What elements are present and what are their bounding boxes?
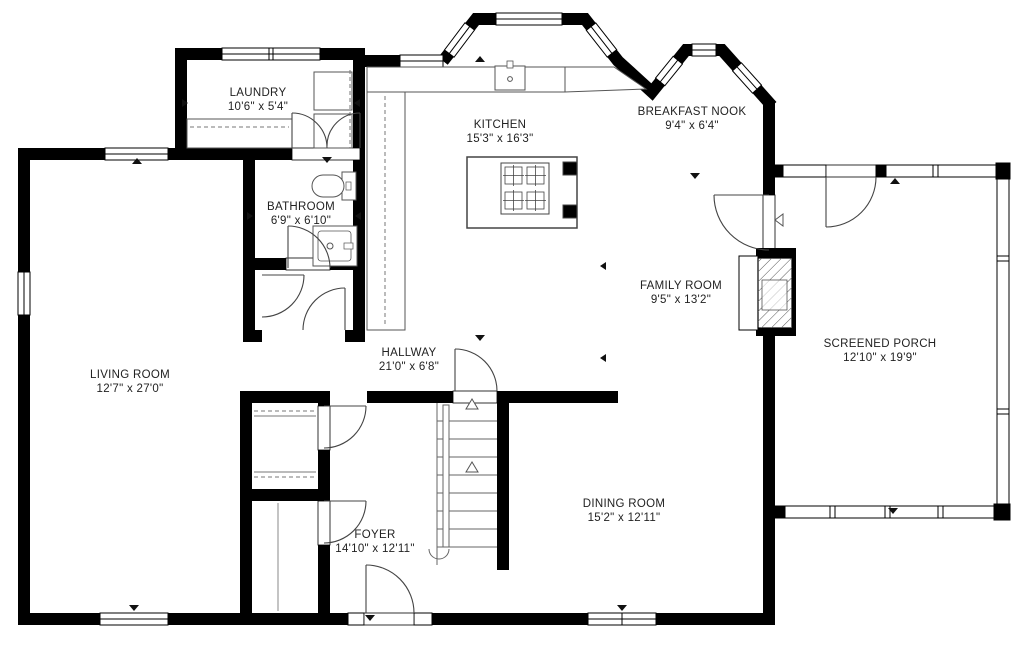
stairs-handrail <box>443 405 449 547</box>
room-label-foyer: FOYER14'10" x 12'11" <box>335 528 415 556</box>
front-door-sidelight <box>414 613 432 625</box>
toilet <box>312 172 356 200</box>
floor-plan: LAUNDRY10'6" x 5'4" KITCHEN15'3" x 16'3"… <box>0 0 1024 662</box>
vestibule-door-b <box>303 288 345 330</box>
bay-window-top <box>496 13 562 25</box>
dining-bottom-window <box>588 613 656 625</box>
room-label-screened-porch: SCREENED PORCH12'10" x 19'9" <box>824 337 937 365</box>
closets <box>254 411 316 611</box>
bay-window-left <box>444 23 474 57</box>
room-label-living-room: LIVING ROOM12'7" x 27'0" <box>90 368 170 396</box>
laundry-counter <box>187 119 292 148</box>
bay-and-nook-walls <box>443 19 772 106</box>
bay-window-right <box>586 23 616 57</box>
porch-access-opening <box>763 195 775 253</box>
family-porch-door <box>714 195 769 250</box>
nook-window-left <box>656 56 683 85</box>
vestibule-door-a <box>262 275 304 317</box>
floor-plan-drawing <box>0 0 1024 662</box>
living-bottom-window <box>100 613 168 625</box>
room-label-laundry: LAUNDRY10'6" x 5'4" <box>228 86 288 114</box>
porch-door-opening <box>826 165 876 177</box>
room-label-bathroom: BATHROOM6'9" x 6'10" <box>267 200 335 228</box>
stair-hall-door <box>455 349 497 391</box>
front-door <box>366 565 414 613</box>
room-label-kitchen: KITCHEN15'3" x 16'3" <box>467 118 534 146</box>
room-label-dining-room: DINING ROOM15'2" x 12'11" <box>583 497 666 525</box>
stairs-handrail-return <box>429 549 449 559</box>
nook-window-top <box>692 44 716 56</box>
room-label-breakfast-nook: BREAKFAST NOOK9'4" x 6'4" <box>638 105 747 133</box>
dryer <box>314 114 352 148</box>
kitchen-top-window <box>400 55 443 67</box>
nook-window-right <box>733 63 762 93</box>
washer <box>314 72 352 110</box>
closet2-door-opening <box>318 501 330 545</box>
front-door-sidelight <box>348 613 364 625</box>
fireplace <box>739 248 796 336</box>
stairs-up-arrow <box>466 462 478 472</box>
laundry-window <box>222 48 320 60</box>
stairs-opening <box>453 391 497 403</box>
bathroom-sink <box>313 226 357 266</box>
closet1-door-opening <box>318 406 330 450</box>
room-label-family-room: FAMILY ROOM9'5" x 13'2" <box>640 279 722 307</box>
kitchen-island <box>467 157 577 228</box>
living-top-window <box>105 148 168 160</box>
room-label-hallway: HALLWAY21'0" x 6'8" <box>379 346 439 374</box>
living-left-window <box>18 272 30 315</box>
stairs <box>429 399 497 565</box>
porch-door <box>826 177 876 227</box>
kitchen-sink <box>495 61 525 90</box>
